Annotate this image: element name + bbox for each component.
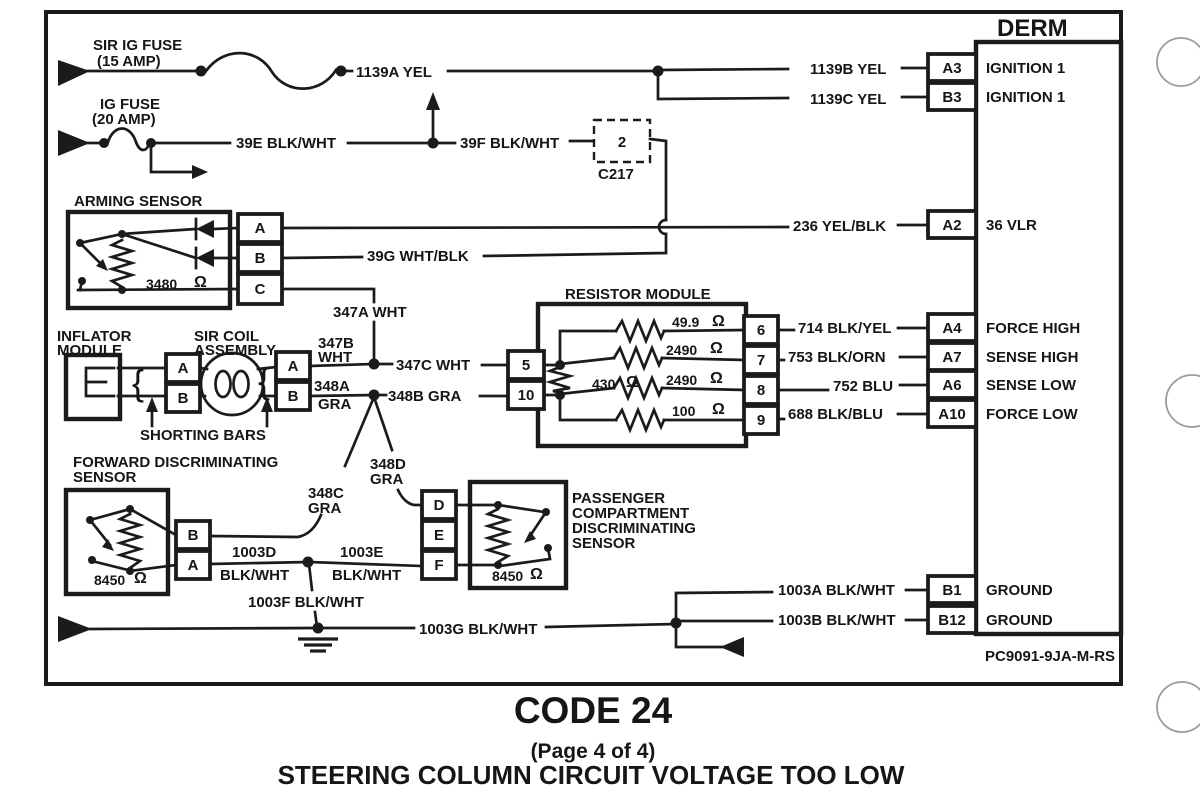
punch-hole-icon xyxy=(1157,38,1200,86)
wire-label: 348B GRA xyxy=(388,388,462,405)
coil-winding-icon xyxy=(234,371,249,397)
ohm-symbol: Ω xyxy=(134,570,147,587)
resistance-value: 3480 xyxy=(146,276,177,292)
resistance-value: 2490 xyxy=(666,342,697,358)
pin-label: B xyxy=(288,388,299,405)
wire-label: 1139A YEL xyxy=(356,64,432,81)
pin-label: B xyxy=(255,250,266,267)
wire-label: 1139B YEL xyxy=(810,61,886,78)
wire-continuation-arrow-icon xyxy=(58,60,90,86)
component-label: MODULE xyxy=(57,342,122,359)
pin-label: A xyxy=(178,360,189,377)
pin-label: 5 xyxy=(522,357,530,374)
diagram-title: STEERING COLUMN CIRCUIT VOLTAGE TOO LOW xyxy=(278,760,905,790)
code-title: CODE 24 xyxy=(514,690,673,731)
up-arrow-icon xyxy=(426,92,440,110)
ohm-symbol: Ω xyxy=(712,401,725,418)
wire-label: 1003A BLK/WHT xyxy=(778,582,895,599)
derm-signal: IGNITION 1 xyxy=(986,89,1065,106)
derm-pin-id: A3 xyxy=(942,60,961,77)
pin-label: B xyxy=(188,527,199,544)
derm-signal: GROUND xyxy=(986,582,1053,599)
part-number: PC9091-9JA-M-RS xyxy=(985,648,1115,665)
wire-label: 347C WHT xyxy=(396,357,470,374)
punch-holes xyxy=(1157,38,1200,732)
wire-label: 753 BLK/ORN xyxy=(788,349,886,366)
pin-label: 10 xyxy=(518,387,535,404)
connector-name: C217 xyxy=(598,166,634,183)
wire-continuation-arrow-icon xyxy=(58,616,92,642)
sir-wiring-diagram: DERM xyxy=(0,0,1200,800)
component-label: ASSEMBLY xyxy=(194,342,276,359)
derm-signal: 36 VLR xyxy=(986,217,1037,234)
wire-label: 1003E xyxy=(340,544,383,561)
inflator-module-box xyxy=(66,355,120,419)
fuse-name: SIR IG FUSE xyxy=(93,37,182,54)
component-label: SHORTING BARS xyxy=(140,427,266,444)
derm-signal: SENSE LOW xyxy=(986,377,1077,394)
wire-39g-right xyxy=(484,234,666,256)
ohm-symbol: Ω xyxy=(626,374,639,391)
pin-label: B xyxy=(178,390,189,407)
wire-label: 714 BLK/YEL xyxy=(798,320,891,337)
pin-label: 6 xyxy=(757,322,765,339)
pin-label: A xyxy=(288,358,299,375)
shorting-bar-brace: { xyxy=(132,362,144,403)
wire-label: GRA xyxy=(370,471,404,488)
wire-348d-lower xyxy=(398,490,422,505)
wire-label: 39F BLK/WHT xyxy=(460,135,559,152)
derm-pin-id: A2 xyxy=(942,217,961,234)
derm-pin-boxes xyxy=(928,54,976,633)
derm-signal: GROUND xyxy=(986,612,1053,629)
pin-label: A xyxy=(255,220,266,237)
derm-pin-id: B3 xyxy=(942,89,961,106)
wire-label: 347A WHT xyxy=(333,304,407,321)
wire-label: 1003F BLK/WHT xyxy=(248,594,364,611)
wire-label: 39G WHT/BLK xyxy=(367,248,469,265)
punch-hole-icon xyxy=(1166,375,1200,427)
wire-continuation-arrow-icon xyxy=(720,637,744,657)
wire-label: 1003B BLK/WHT xyxy=(778,612,896,629)
fuse-icon xyxy=(108,129,149,151)
resistance-value: 8450 xyxy=(94,572,125,588)
derm-pin-id: A6 xyxy=(942,377,961,394)
pin-label: A xyxy=(188,557,199,574)
ohm-symbol: Ω xyxy=(710,370,723,387)
pin-label: C xyxy=(255,281,266,298)
pin-label: F xyxy=(434,557,443,574)
resistance-value: 2490 xyxy=(666,372,697,388)
pin-label: 9 xyxy=(757,412,765,429)
wire-label: WHT xyxy=(318,349,352,366)
derm-signal: SENSE HIGH xyxy=(986,349,1079,366)
wire-348c-lower xyxy=(210,515,321,537)
derm-pin-id: A4 xyxy=(942,320,962,337)
up-arrow-icon xyxy=(146,397,158,412)
derm-box xyxy=(976,42,1121,634)
component-label: ARMING SENSOR xyxy=(74,193,203,210)
derm-pin-id: A10 xyxy=(938,406,966,423)
resistance-value: 8450 xyxy=(492,568,523,584)
wire-1003f-upper xyxy=(309,564,312,590)
pin-label: 7 xyxy=(757,352,765,369)
wire-label: 1003G BLK/WHT xyxy=(419,621,537,638)
wire-label: 688 BLK/BLU xyxy=(788,406,883,423)
punch-hole-icon xyxy=(1157,682,1200,732)
fuse-rating: (20 AMP) xyxy=(92,111,156,128)
coil-winding-icon xyxy=(216,371,231,397)
wire-1139 xyxy=(58,53,928,99)
wire-label: 752 BLU xyxy=(833,378,893,395)
coil-icon xyxy=(201,353,263,415)
derm-signal: FORCE LOW xyxy=(986,406,1078,423)
wire-label: 1003D xyxy=(232,544,276,561)
arming-sensor xyxy=(68,212,282,308)
component-label: SENSOR xyxy=(73,469,137,486)
ohm-symbol: Ω xyxy=(710,340,723,357)
pin-label: D xyxy=(434,497,445,514)
wire-label: 39E BLK/WHT xyxy=(236,135,336,152)
connector-pin: 2 xyxy=(618,134,626,151)
derm-title: DERM xyxy=(997,15,1068,42)
derm-signal: IGNITION 1 xyxy=(986,60,1065,77)
ohm-symbol: Ω xyxy=(530,566,543,583)
wire-label: GRA xyxy=(308,500,342,517)
fuse-icon xyxy=(206,53,336,89)
wire-347-348 xyxy=(210,359,510,538)
component-label: SENSOR xyxy=(572,535,636,552)
derm-pin-id: A7 xyxy=(942,349,961,366)
shorting-bar-brace: { xyxy=(258,360,270,401)
pin-label: 8 xyxy=(757,382,765,399)
wire-c217-drop xyxy=(650,139,666,220)
derm-pin-id: B1 xyxy=(942,582,961,599)
ohm-symbol: Ω xyxy=(712,313,725,330)
component-label: RESISTOR MODULE xyxy=(565,286,711,303)
branch-arrow-icon xyxy=(192,165,208,179)
wire-label: BLK/WHT xyxy=(332,567,401,584)
wire-continuation-arrow-icon xyxy=(58,130,90,156)
wire-label: 1139C YEL xyxy=(810,91,886,108)
derm-signal: FORCE HIGH xyxy=(986,320,1080,337)
wire-label: 236 YEL/BLK xyxy=(793,218,886,235)
resistance-value: 100 xyxy=(672,403,696,419)
resistance-value: 49.9 xyxy=(672,314,699,330)
derm-pin-id: B12 xyxy=(938,612,966,629)
ohm-symbol: Ω xyxy=(194,274,207,291)
fuse-rating: (15 AMP) xyxy=(97,53,161,70)
wire-label: 348A xyxy=(314,378,350,395)
wire-39g-left xyxy=(282,257,362,258)
resistance-value: 430 xyxy=(592,376,616,392)
wire-label: BLK/WHT xyxy=(220,567,289,584)
wire-label: GRA xyxy=(318,396,352,413)
pin-label: E xyxy=(434,527,444,544)
